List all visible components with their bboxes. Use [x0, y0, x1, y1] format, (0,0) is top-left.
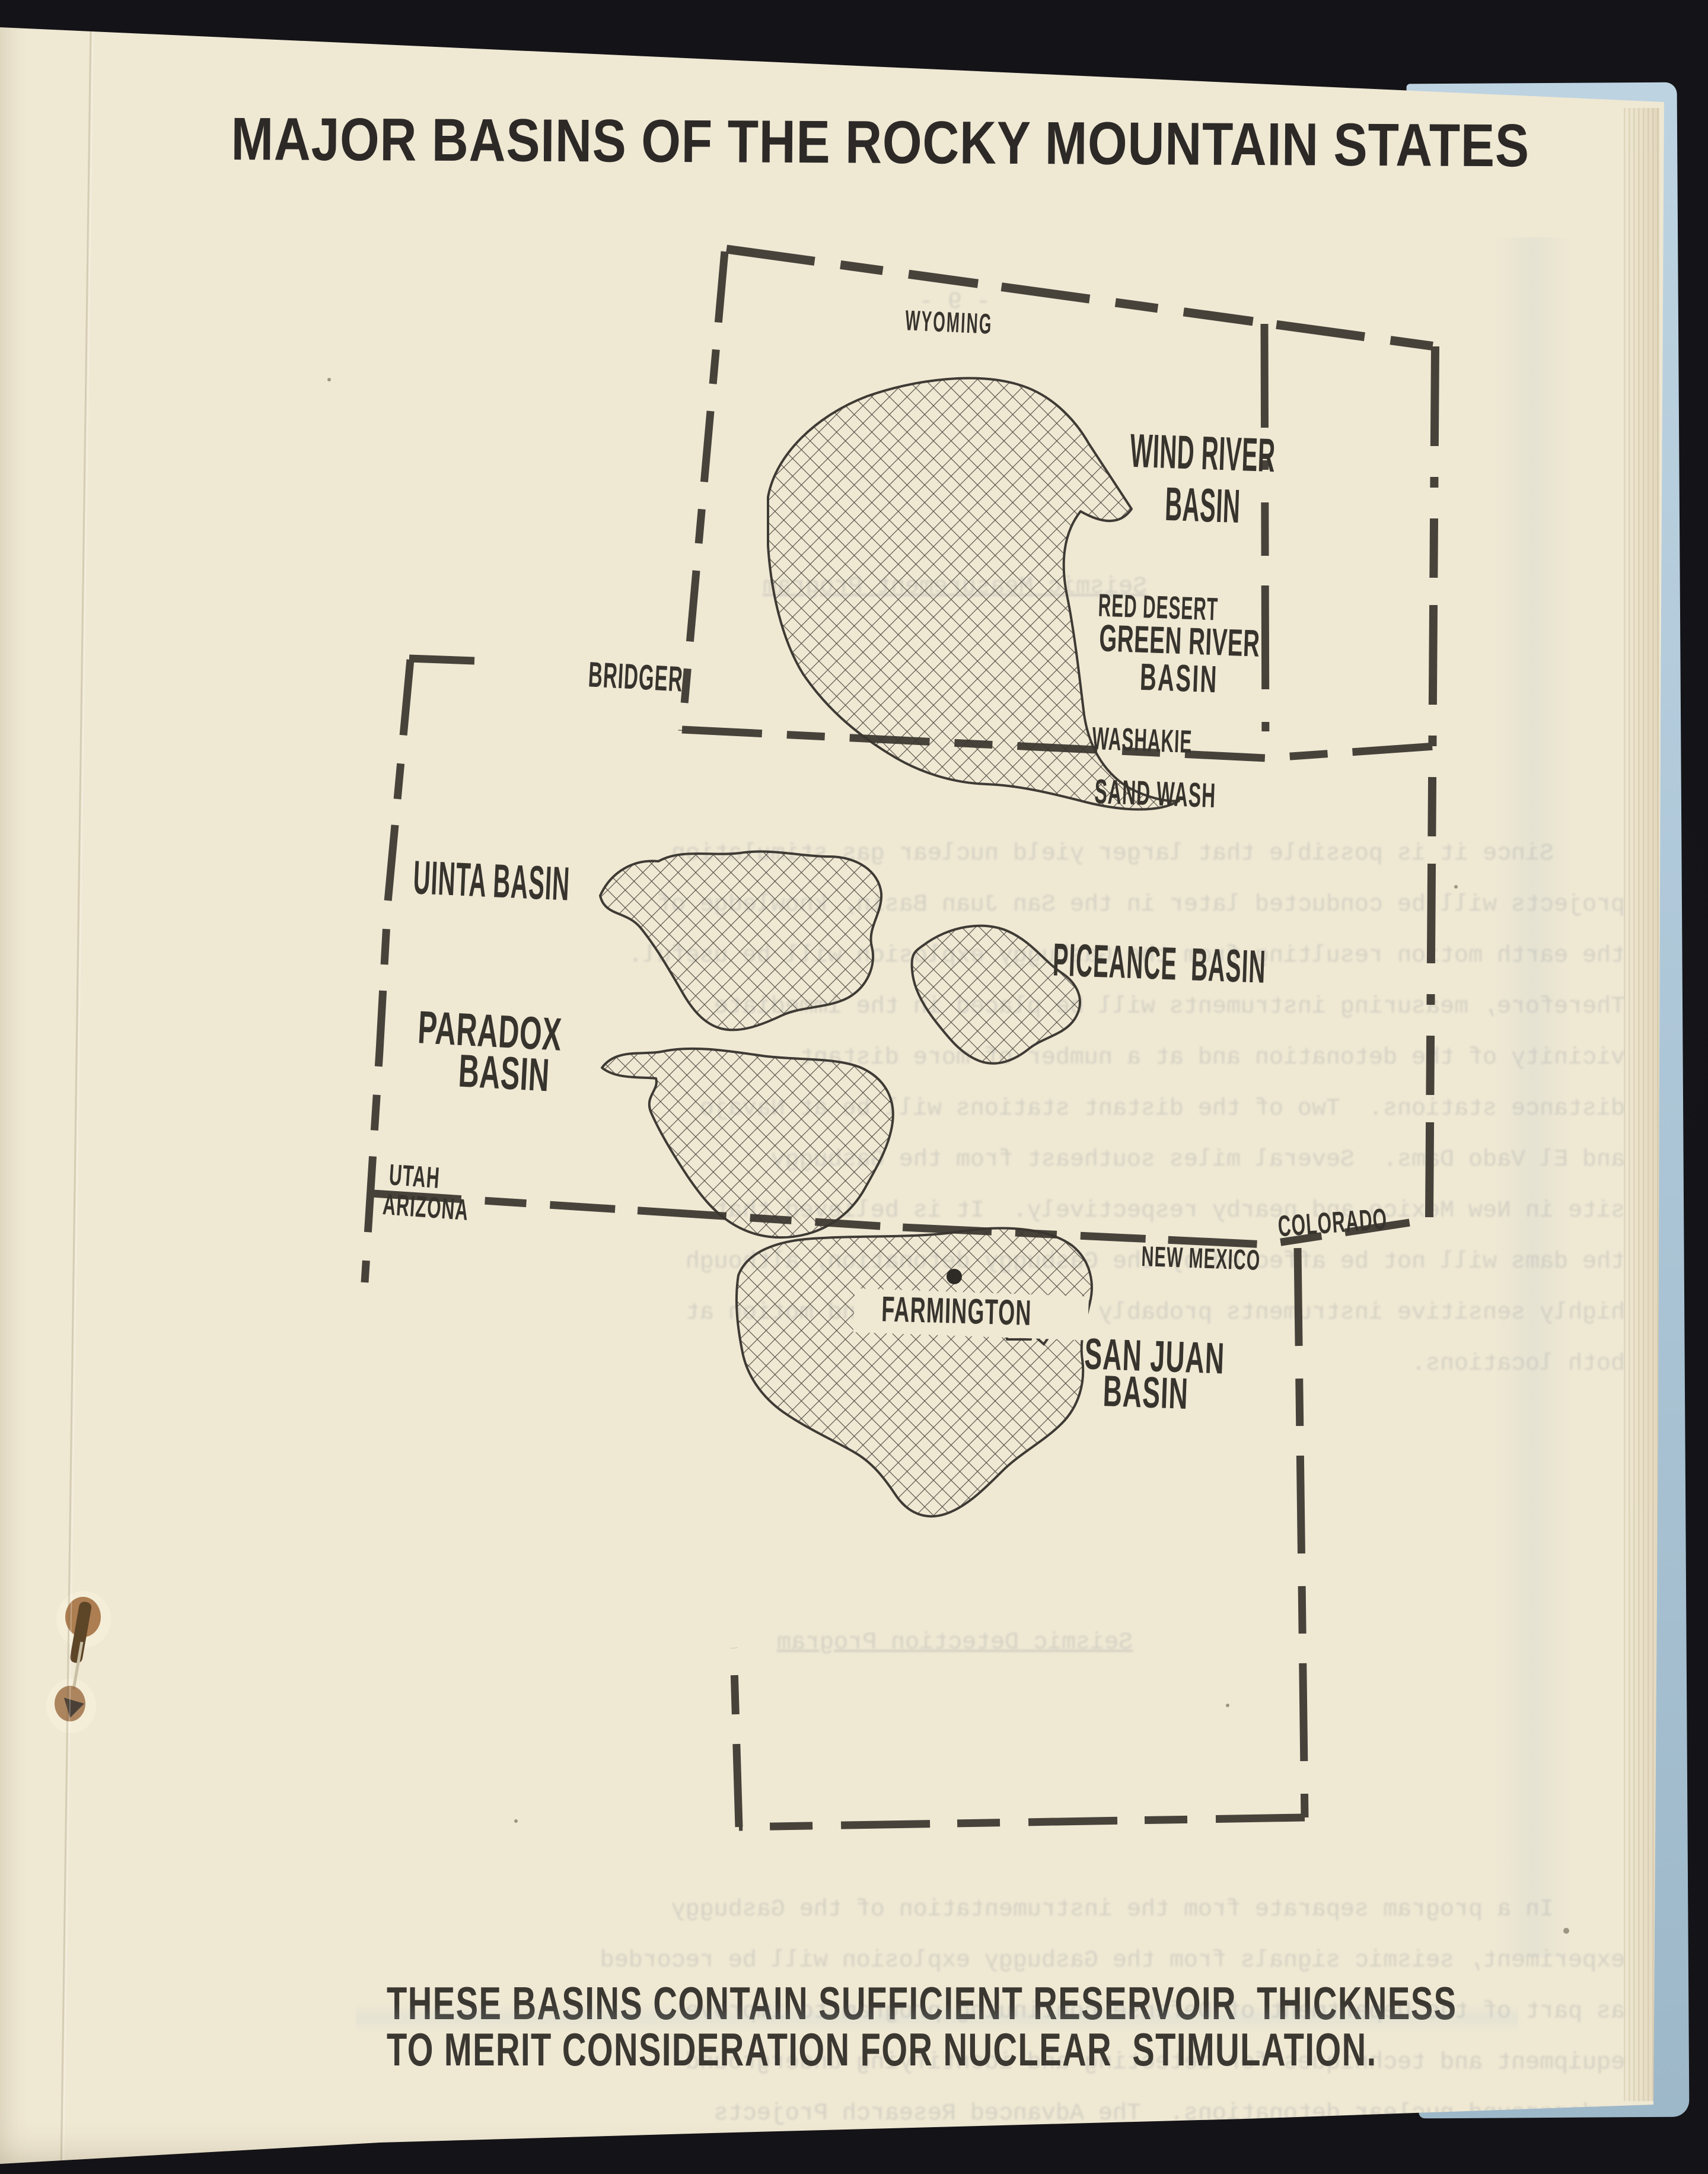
page-edge-stack	[1624, 108, 1659, 2101]
label-wind-river-line2: BASIN	[1164, 477, 1241, 534]
border-west-tick	[409, 658, 474, 661]
staple	[46, 1591, 111, 1733]
label-green-river-line2: BASIN	[1139, 655, 1219, 702]
label-washakie: WASHAKIE	[1092, 720, 1193, 760]
san-juan-basin-shape	[737, 1228, 1092, 1517]
border-new-mexico-west	[734, 1648, 739, 1827]
label-sand-wash: SAND WASH	[1094, 772, 1216, 816]
border-new-mexico-east	[1298, 1248, 1305, 1817]
border-wyoming-west	[682, 252, 725, 731]
page-crease-line	[61, 28, 93, 2171]
border-new-mexico-south	[739, 1817, 1305, 1827]
showthrough-smudge-horizontal	[356, 2004, 1518, 2032]
border-wyoming-north	[726, 249, 1435, 346]
label-piceance-basin: PICEANCE BASIN	[1052, 932, 1267, 994]
border-map-east	[1429, 346, 1435, 1217]
basin-map-drawing	[0, 0, 1708, 2174]
uinta-basin-shape	[600, 852, 881, 1030]
label-new-mexico: NEW MEXICO	[1141, 1240, 1261, 1277]
label-wyoming: WYOMING	[904, 304, 993, 340]
label-paradox-line2: BASIN	[457, 1044, 551, 1103]
border-interior-vertical	[1264, 324, 1266, 757]
label-bridger: BRIDGER	[587, 654, 684, 699]
scanned-page-canvas: - 9 - Seismic Measurement Program Since …	[0, 0, 1708, 2174]
farmington-town-dot	[947, 1269, 962, 1284]
page-title: MAJOR BASINS OF THE ROCKY MOUNTAIN STATE…	[231, 104, 1529, 180]
label-arizona: ARIZONA	[382, 1187, 470, 1227]
label-farmington: FARMINGTON	[881, 1288, 1032, 1333]
paper-page: - 9 - Seismic Measurement Program Since …	[0, 0, 1708, 2174]
showthrough-smudge-vertical	[1494, 237, 1572, 1957]
label-uinta-basin: UINTA BASIN	[412, 850, 571, 911]
label-wind-river-line1: WIND RIVER	[1129, 424, 1276, 483]
label-san-juan-line2: BASIN	[1102, 1365, 1189, 1419]
